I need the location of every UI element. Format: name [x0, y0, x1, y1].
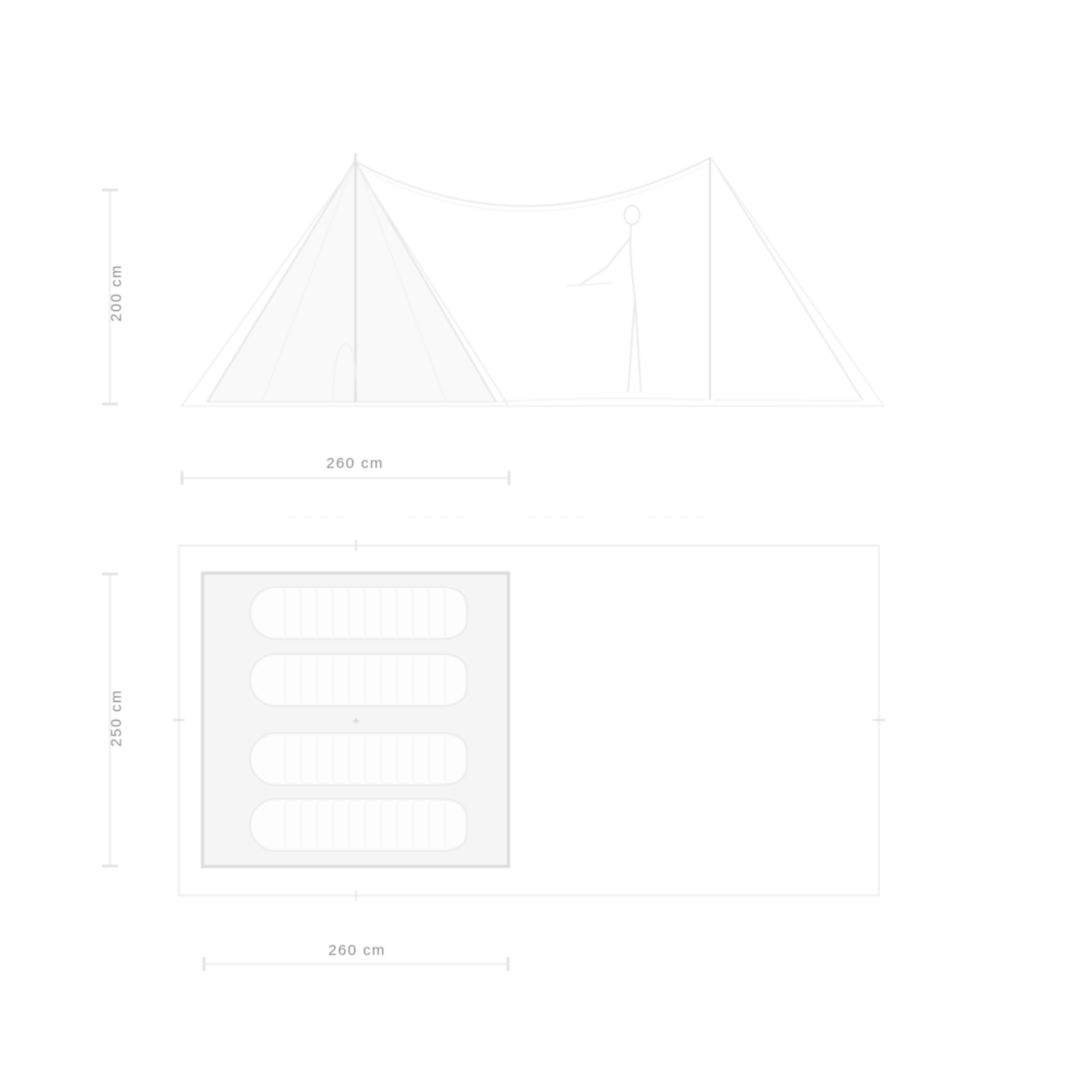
svg-text:250 cm: 250 cm [108, 689, 125, 747]
svg-text:260 cm: 260 cm [328, 942, 386, 959]
svg-text:260 cm: 260 cm [326, 455, 384, 472]
svg-text:200 cm: 200 cm [108, 264, 125, 322]
